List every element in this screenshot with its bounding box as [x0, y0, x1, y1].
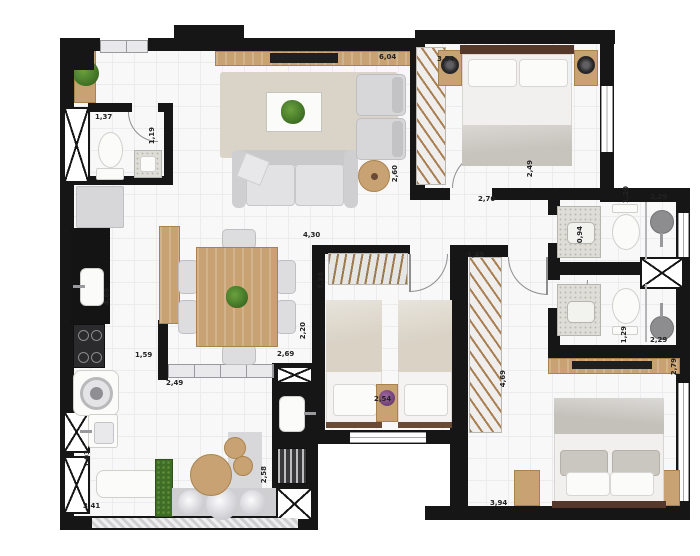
- balcony-round-table: [190, 454, 232, 496]
- door-leaf-dorm3: [409, 254, 411, 292]
- white-plant: [240, 490, 266, 516]
- burner: [91, 352, 102, 363]
- dorm3-single-bed: [398, 300, 452, 428]
- laundry-tank-basin: [94, 422, 114, 444]
- dim-label: 4,69: [103, 288, 111, 305]
- dim-label: 2,54: [374, 395, 391, 403]
- bath1-toilet-tank: [612, 204, 638, 213]
- window-dorm2: [601, 86, 613, 152]
- kitchen-sink: [80, 268, 104, 306]
- dim-label: 2,60: [391, 165, 399, 182]
- wall-top-step: [174, 25, 244, 51]
- dim-label: 4,30: [303, 231, 320, 239]
- apartment-floor-plan: 1,37 1,19 6,04 3,54 2,60 2,70 2,49 1,20 …: [0, 0, 700, 556]
- bath2-basin: [567, 301, 595, 323]
- outside-area-top-right: [614, 30, 700, 188]
- sofa-cushion: [295, 164, 344, 206]
- suite-tv: [572, 361, 652, 369]
- stove: [73, 324, 105, 368]
- dorm3-pillow: [404, 384, 448, 416]
- side-table: [358, 160, 390, 192]
- burner: [91, 330, 102, 341]
- tv: [270, 53, 338, 63]
- white-plant: [178, 490, 204, 516]
- lavabo-toilet-bowl: [98, 132, 123, 168]
- dim-label: 3,41: [83, 502, 100, 510]
- dim-label: 2,20: [299, 322, 307, 339]
- dim-label: 3,54: [437, 55, 454, 63]
- dim-label: 2,49: [166, 379, 183, 387]
- suite-pillow: [566, 472, 610, 496]
- suite-nightstand: [514, 470, 540, 506]
- sofa-arm-right: [344, 150, 358, 208]
- dim-label: 0,94: [576, 226, 584, 243]
- coffee-table-plant: [281, 100, 305, 124]
- dim-label: 4,69: [499, 370, 507, 387]
- dorm2-pillow: [519, 59, 568, 87]
- bath2-toilet-bowl: [612, 288, 640, 324]
- entrance-door: [100, 40, 148, 53]
- dim-label: 1,49: [467, 251, 484, 259]
- sofa: [232, 150, 358, 208]
- suite-blanket: [554, 398, 664, 434]
- dining-chair: [178, 260, 198, 294]
- wall-hall-top-b: [492, 188, 602, 200]
- armchair-back: [392, 121, 403, 157]
- dorm2-blanket: [462, 125, 572, 166]
- dining-chair: [276, 260, 296, 294]
- dim-label: 2,69: [277, 350, 294, 358]
- dorm2-double-bed: [460, 45, 574, 167]
- dim-label: 3,24: [317, 272, 325, 289]
- wall-bath2-bottom: [548, 345, 676, 358]
- dining-chair: [178, 300, 198, 334]
- dim-label: 6,04: [379, 53, 396, 61]
- laundry-tank: [88, 414, 118, 448]
- dim-label: 2,70: [478, 195, 495, 203]
- wall-between-baths: [548, 262, 644, 275]
- refrigerator: [76, 186, 124, 228]
- dim-label: 1,59: [135, 351, 152, 359]
- wall-dorm3-right: [450, 245, 468, 430]
- dorm3-bed-base: [326, 422, 382, 428]
- dorm2-headboard: [460, 45, 574, 54]
- washer-door: [90, 387, 103, 400]
- gourmet-sink: [279, 396, 305, 432]
- dim-label: 2,29: [650, 336, 667, 344]
- dining-chair: [222, 229, 256, 249]
- bath2-vanity: [557, 284, 601, 336]
- bath2-shower-stem: [660, 303, 663, 317]
- shaft-lavabo: [63, 107, 90, 183]
- dorm3-bed-base: [398, 422, 452, 428]
- dorm3-wardrobe: [328, 253, 408, 285]
- kitchen-faucet: [73, 285, 85, 288]
- barbecue-grill: [277, 448, 307, 484]
- dim-label: 2,79: [670, 358, 678, 375]
- dorm3-blanket: [398, 300, 452, 372]
- balcony-stool: [233, 456, 253, 476]
- window-bath1: [678, 213, 689, 257]
- lavabo-toilet-tank: [96, 168, 124, 180]
- wall-lavabo-right: [164, 107, 173, 185]
- armchair-back: [392, 77, 403, 113]
- suite-headboard: [552, 501, 666, 508]
- dining-chair: [222, 345, 256, 365]
- dim-label: 1,20: [622, 186, 630, 203]
- shaft-gourmet: [276, 487, 313, 521]
- dim-label: 2,58: [260, 466, 268, 483]
- bath2-shower-glass: [645, 284, 647, 342]
- dim-label: 1,19: [148, 127, 156, 144]
- bath1-toilet-bowl: [612, 214, 640, 250]
- dim-label: 3,94: [490, 499, 507, 507]
- gourmet-faucet: [304, 412, 316, 415]
- wall-suite-left-lower: [450, 444, 468, 514]
- dim-label: 1,37: [95, 113, 112, 121]
- dorm2-lamp: [577, 56, 595, 74]
- suite-pillow: [610, 472, 654, 496]
- washing-machine: [73, 370, 119, 416]
- dorm3-pillow: [333, 384, 377, 416]
- laundry-faucet: [80, 430, 92, 433]
- door-leaf-suite: [546, 257, 548, 295]
- wall-top-dorm2: [415, 30, 615, 44]
- burner: [78, 330, 89, 341]
- balcony-bench: [96, 470, 160, 498]
- dim-label: 2,49: [526, 160, 534, 177]
- dim-label: 2,29: [650, 193, 667, 201]
- dining-centerpiece: [226, 286, 248, 308]
- side-table-decor: [371, 173, 378, 180]
- dining-chair: [276, 300, 296, 334]
- balcony-hedge: [155, 459, 173, 517]
- window-dorm3: [350, 432, 426, 443]
- dorm3-blanket: [326, 300, 382, 372]
- suite-double-bed: [552, 390, 666, 508]
- suite-closet: [469, 257, 502, 433]
- burner: [78, 352, 89, 363]
- bath1-shower-glass: [645, 202, 647, 260]
- lavabo-sink-basin: [140, 156, 156, 172]
- balcony-sliding-door: [168, 364, 274, 378]
- dorm2-pillow: [468, 59, 517, 87]
- dorm3-single-bed: [326, 300, 382, 428]
- dim-label: 1,29: [620, 326, 628, 343]
- dining-sideboard: [159, 226, 180, 324]
- wall-hall-top-a: [425, 188, 450, 200]
- dim-label: 1,03: [83, 450, 91, 467]
- vent-gourmet: [276, 366, 313, 384]
- bath1-shower-head: [650, 210, 674, 234]
- armchair: [356, 118, 406, 160]
- wall-kitchen-stub: [158, 320, 168, 380]
- balcony-railing: [92, 518, 298, 528]
- bath1-shower-stem: [660, 233, 663, 247]
- wall-lavabo-top: [88, 103, 132, 112]
- armchair: [356, 74, 406, 116]
